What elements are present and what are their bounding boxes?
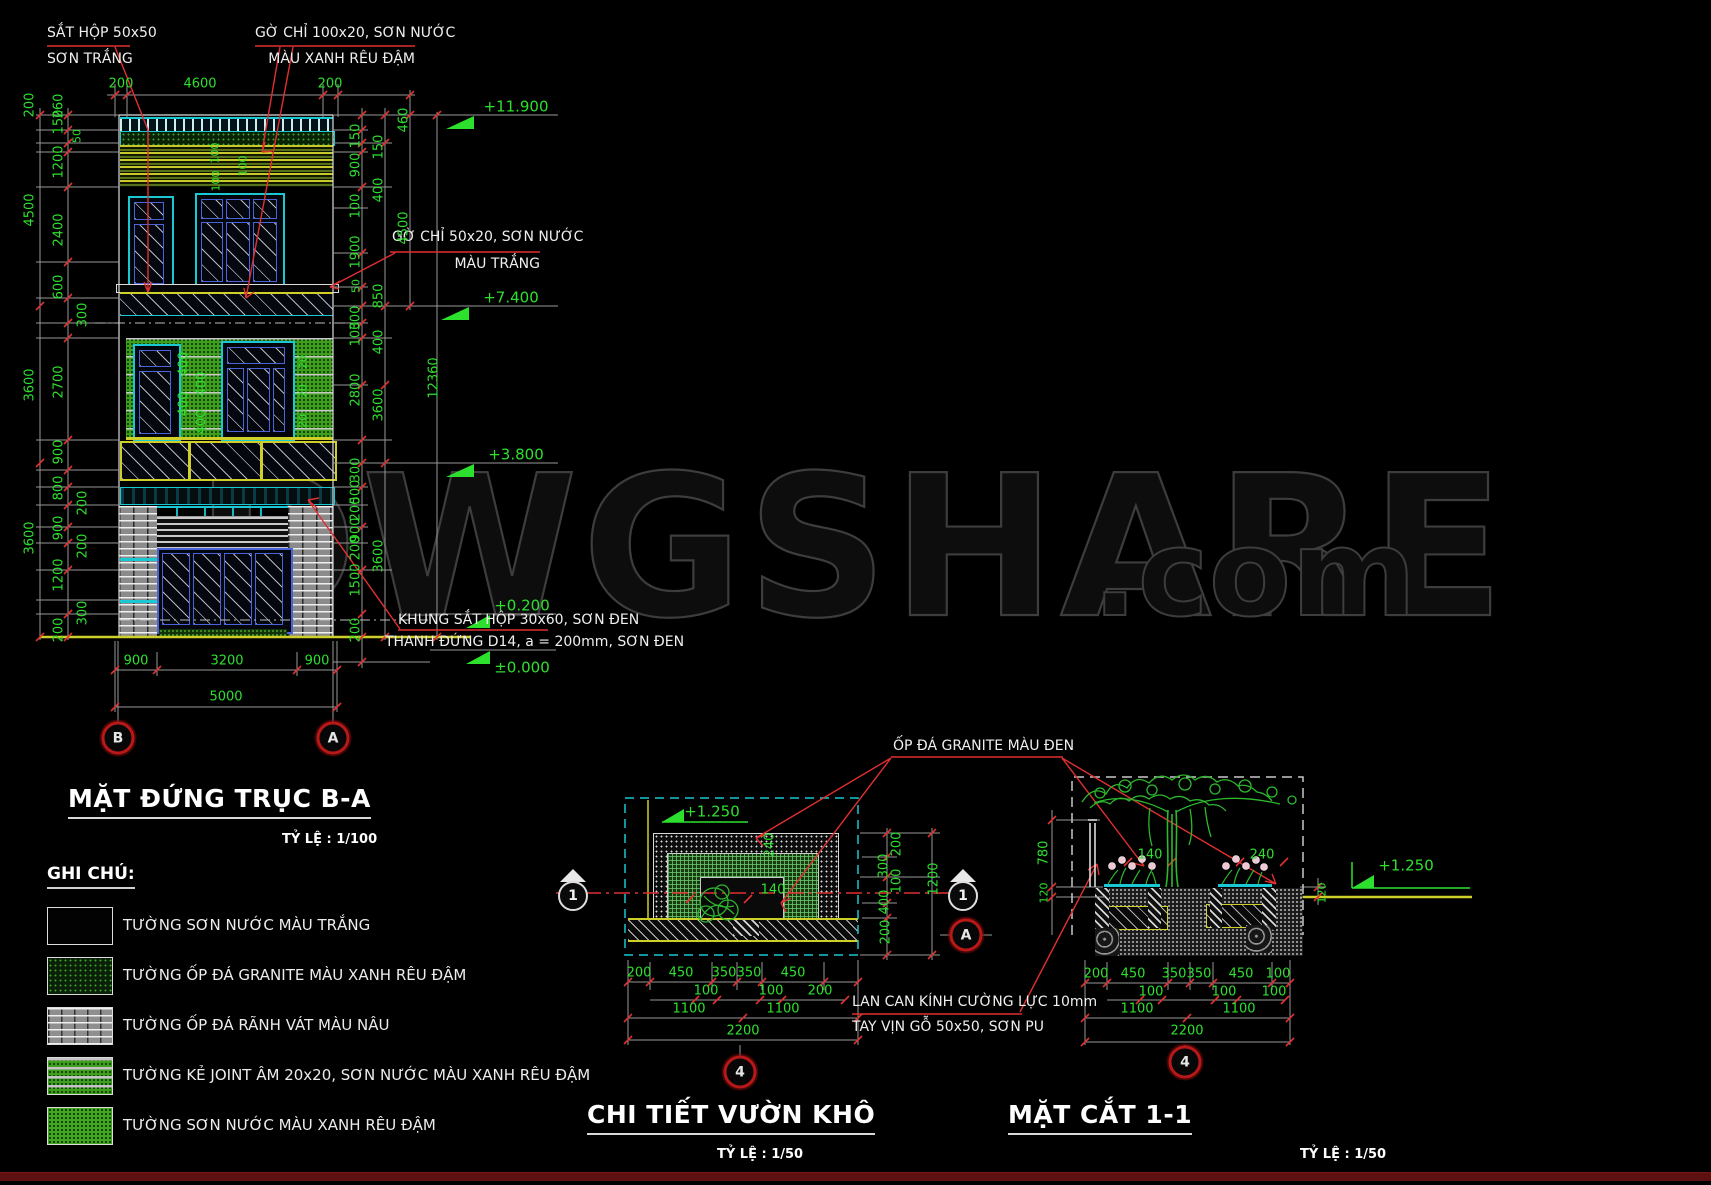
dim-label: 3600: [373, 539, 386, 572]
window-floor2-left: [133, 344, 181, 441]
annotation-lancan: LAN CAN KÍNH CƯỜNG LỰC 10mm: [852, 993, 1097, 1013]
base-center-block: [733, 920, 759, 936]
watermark-suffix: .com: [1092, 505, 1416, 644]
bottom-red-bar: [0, 1172, 1711, 1181]
cyan-trim: [120, 600, 157, 603]
dim-label: 20: [298, 355, 309, 369]
dim-label: 240: [764, 833, 777, 858]
dim-label: 4500: [24, 193, 37, 226]
dim-label: 140: [1138, 849, 1163, 862]
dim-label: 4600: [183, 78, 216, 91]
dim-label: 100: [1212, 986, 1237, 999]
level-label: +3.800: [488, 448, 544, 463]
section-marker-1-left: 1: [558, 881, 588, 911]
annotation-gochi100-2: MÀU XANH RÊU ĐẬM: [255, 50, 415, 70]
watermark-text: DWGSHARE: [195, 434, 1508, 662]
dim-label: 350: [712, 967, 737, 980]
dim-label: 1100: [672, 1003, 705, 1016]
dim-label: 120: [1317, 883, 1328, 904]
section-title: MẶT CẮT 1-1: [1008, 1100, 1192, 1135]
window-pane: [247, 368, 270, 432]
louvre-band: [120, 487, 335, 505]
planter-rim: [1218, 884, 1272, 887]
dim-label: 4500: [398, 211, 411, 244]
window-pane: [201, 222, 223, 282]
rubble-stone: [1246, 925, 1272, 953]
dim-label: 300: [77, 303, 90, 328]
dim-label: 1100: [1120, 1003, 1153, 1016]
door-pane: [162, 553, 190, 625]
dim-label: 350: [737, 967, 762, 980]
dim-label: 20: [298, 384, 309, 398]
dim-label: 2200: [1170, 1025, 1203, 1038]
dim-label: 100: [1139, 986, 1164, 999]
dim-label: 1200: [53, 145, 66, 178]
window-floor2-right: [221, 341, 295, 441]
door-base-strip: [159, 629, 287, 636]
dim-label: 900: [124, 655, 149, 668]
joint-stripe-band: [120, 145, 333, 187]
garden-detail-title: CHI TIẾT VƯỜN KHÔ: [587, 1100, 875, 1135]
window-pane: [253, 222, 277, 282]
window-pane: [139, 371, 171, 434]
window-pane: [139, 350, 171, 367]
dim-label: 350: [1187, 968, 1212, 981]
dim-label: 200: [350, 536, 363, 561]
dim-label: 450: [781, 967, 806, 980]
brick-column-right: [288, 506, 333, 637]
window-pane: [227, 347, 285, 364]
dim-label: 150: [350, 124, 363, 149]
dim-label: 900: [305, 655, 330, 668]
dim-label: 780: [1038, 841, 1051, 866]
dim-label: 200: [53, 618, 66, 643]
annotation-sat-hop: SẮT HỘP 50x50: [47, 24, 157, 44]
dim-label: 450: [1229, 968, 1254, 981]
level-label: +11.900: [483, 100, 548, 115]
dim-label: 200: [77, 491, 90, 516]
door-pane: [224, 553, 252, 625]
dim-label: 460: [398, 108, 411, 133]
dim-label: 200: [1084, 968, 1109, 981]
window-pane: [226, 199, 250, 219]
dim-label: 3200: [210, 655, 243, 668]
axis-bubble-b: B: [102, 722, 135, 755]
dim-label: 400: [178, 392, 191, 417]
window-pane: [273, 368, 285, 432]
legend-swatch-white-wall: [47, 907, 113, 945]
dim-label: 120: [1039, 883, 1050, 904]
dim-label: 200: [350, 618, 363, 643]
dim-label: 350: [1162, 968, 1187, 981]
legend-item-label: TƯỜNG KẺ JOINT ÂM 20x20, SƠN NƯỚC MÀU XA…: [123, 1066, 590, 1084]
balcony-glass-floor3: [120, 292, 333, 316]
dim-label: 2400: [53, 213, 66, 246]
window-floor3-left: [128, 196, 174, 292]
elevation-title: MẶT ĐỨNG TRỤC B-A: [68, 784, 371, 819]
dim-label: 2800: [350, 373, 363, 406]
legend-swatch-granite-green: [47, 957, 113, 995]
dim-label: 200: [109, 78, 134, 91]
dim-label: 450: [1121, 968, 1146, 981]
window-pane: [227, 368, 244, 432]
dim-label: 100: [1266, 968, 1291, 981]
sill-line: [126, 437, 333, 440]
dim-label: 300: [77, 601, 90, 626]
level-label: ±0.000: [494, 661, 550, 676]
legend-swatch-joint-green: [47, 1057, 113, 1095]
dim-label: 400: [196, 410, 209, 435]
legend-item-label: TƯỜNG ỐP ĐÁ RÃNH VÁT MÀU NÂU: [123, 1016, 389, 1034]
planter-wall-hatch: [1210, 888, 1222, 928]
legend-swatch-brown-stone: [47, 1007, 113, 1045]
balcony-glass-floor2: [120, 441, 337, 481]
dim-label: 400: [178, 352, 191, 377]
dim-label: 5000: [209, 691, 242, 704]
axis-bubble-a-garden: A: [950, 919, 983, 952]
dim-label: 200: [24, 93, 37, 118]
dim-label: 1100: [1222, 1003, 1255, 1016]
dim-label: 50: [72, 129, 83, 143]
elevation-scale: TỶ LỆ : 1/100: [282, 832, 377, 847]
dim-label: 100: [1262, 986, 1287, 999]
planter-wall-hatch: [1262, 888, 1276, 930]
dim-label: 900: [53, 440, 66, 465]
dim-label: 1900: [350, 235, 363, 268]
dim-label: 150: [373, 135, 386, 160]
annotation-sat-hop-2: SƠN TRẮNG: [47, 50, 133, 70]
granite-band: [120, 131, 335, 146]
dim-label: 240: [1250, 849, 1275, 862]
section-scale: TỶ LỆ : 1/50: [1300, 1147, 1386, 1162]
dim-label: 12360: [428, 357, 441, 398]
dim-label: 100: [694, 985, 719, 998]
dim-label: 100: [238, 156, 249, 177]
dim-label: 1100: [766, 1003, 799, 1016]
axis-bubble-4-section: 4: [1169, 1046, 1202, 1079]
dim-label: 400: [196, 372, 209, 397]
dim-label: 3600: [24, 368, 37, 401]
axis-bubble-a: A: [317, 722, 350, 755]
railing-post: [260, 443, 263, 479]
level-label: +1.250: [1378, 859, 1434, 874]
annotation-gochi50-2: MÀU TRẮNG: [392, 255, 540, 275]
window-pane: [134, 202, 164, 220]
level-label: +7.400: [483, 291, 539, 306]
dim-label: 900: [350, 153, 363, 178]
planter-wall-hatch: [1095, 888, 1109, 930]
glass-entry-door: [157, 548, 293, 634]
dim-label: 400: [879, 890, 892, 915]
dim-label: 1500: [350, 563, 363, 596]
axis-bubble-4-garden: 4: [724, 1056, 757, 1089]
door-pane: [193, 553, 221, 625]
dim-label: 50: [351, 279, 362, 293]
dim-label: 200: [891, 832, 904, 857]
dim-label: 140: [761, 884, 786, 897]
dim-label: 200: [627, 967, 652, 980]
roller-shutter-band: [155, 516, 291, 551]
legend-item-label: TƯỜNG SƠN NƯỚC MÀU TRẮNG: [123, 916, 370, 934]
cyan-trim: [120, 558, 157, 561]
railing-post: [188, 443, 191, 479]
dim-label: 100: [350, 322, 363, 347]
dim-label: 400: [373, 178, 386, 203]
dim-label: 600: [53, 275, 66, 300]
dim-label: 2700: [53, 365, 66, 398]
cad-drawing-canvas: DWGSHARE .com: [0, 0, 1711, 1185]
dim-label: 20: [298, 414, 309, 428]
dim-label: 100: [211, 171, 222, 192]
garden-detail-scale: TỶ LỆ : 1/50: [717, 1147, 803, 1162]
level-label: +0.200: [494, 599, 550, 614]
window-pane: [134, 224, 164, 284]
legend-item-label: TƯỜNG ỐP ĐÁ GRANITE MÀU XANH RÊU ĐẬM: [123, 966, 466, 984]
dim-label: 3600: [24, 521, 37, 554]
dim-label: 200: [318, 78, 343, 91]
dim-label: 800: [53, 476, 66, 501]
dim-label: 200: [77, 534, 90, 559]
level-label: +1.250: [684, 805, 740, 820]
dim-label: 100: [759, 985, 784, 998]
dim-label: 200: [808, 985, 833, 998]
dim-label: 1200: [928, 862, 941, 895]
annotation-granite-black: ỐP ĐÁ GRANITE MÀU ĐEN: [893, 737, 1074, 757]
dim-label: 3600: [373, 388, 386, 421]
dim-label: 1200: [53, 558, 66, 591]
dim-label: 450: [669, 967, 694, 980]
window-floor3-right: [195, 193, 285, 292]
annotation-gochi50: GỜ CHỈ 50x20, SƠN NƯỚC: [392, 228, 540, 248]
annotation-thanh-dung: THANH ĐỨNG D14, a = 200mm, SƠN ĐEN: [385, 633, 548, 653]
dim-label: 200: [880, 920, 893, 945]
section-marker-1-right: 1: [948, 881, 978, 911]
brick-column-left: [119, 506, 157, 637]
legend-title: GHI CHÚ:: [47, 864, 135, 889]
annotation-tayvin: TAY VỊN GỖ 50x50, SƠN PU: [852, 1018, 1044, 1038]
dim-label: 2200: [726, 1025, 759, 1038]
dim-label: 900: [53, 516, 66, 541]
dim-label: 150: [53, 110, 66, 135]
dim-label: 100: [350, 194, 363, 219]
window-pane: [226, 222, 250, 282]
door-pane: [255, 553, 283, 625]
annotation-gochi100: GỜ CHỈ 100x20, SƠN NƯỚC: [255, 24, 415, 44]
window-pane: [201, 199, 223, 219]
planter-wall-hatch: [1148, 888, 1161, 928]
rubble-stone: [1095, 928, 1119, 956]
dim-label: 850: [373, 284, 386, 309]
planter-rim: [1104, 884, 1160, 887]
dim-label: 100: [210, 143, 221, 164]
window-pane: [253, 199, 277, 219]
dim-label: 400: [373, 330, 386, 355]
legend-swatch-green-paint: [47, 1107, 113, 1145]
legend-item-label: TƯỜNG SƠN NƯỚC MÀU XANH RÊU ĐẬM: [123, 1116, 436, 1134]
